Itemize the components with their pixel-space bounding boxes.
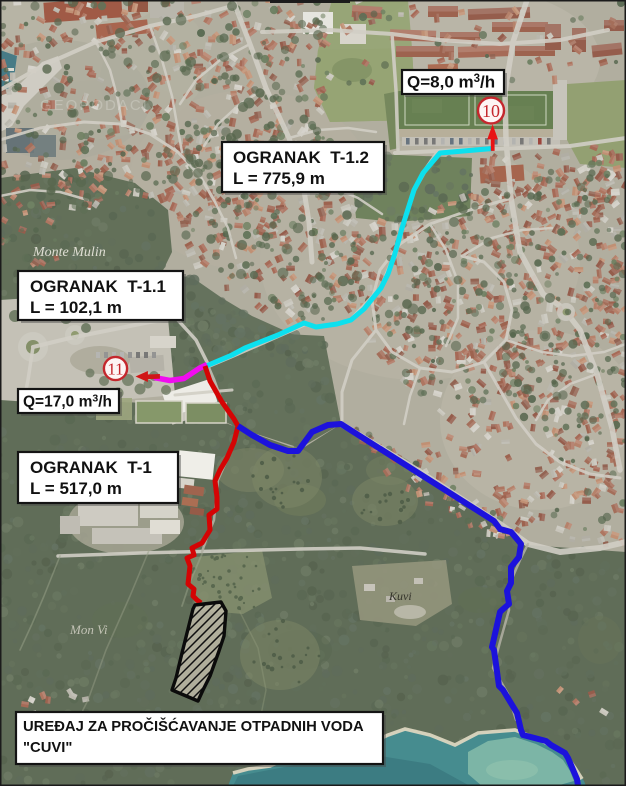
svg-text:GEOPODACI: GEOPODACI (40, 97, 149, 114)
svg-text:UREĐAJ ZA PROČIŠĆAVANJE OTPADN: UREĐAJ ZA PROČIŠĆAVANJE OTPADNIH VODA (23, 717, 364, 735)
svg-text:11: 11 (107, 360, 123, 379)
svg-text:L = 775,9 m: L = 775,9 m (233, 169, 325, 188)
svg-text:L = 517,0 m: L = 517,0 m (30, 479, 122, 498)
svg-text:Q=17,0 m3/h: Q=17,0 m3/h (23, 393, 112, 411)
svg-text:OGRANAK T-1.2: OGRANAK T-1.2 (233, 148, 369, 167)
svg-text:L = 102,1 m: L = 102,1 m (30, 298, 122, 317)
svg-text:Monte Mulin: Monte Mulin (32, 245, 106, 260)
svg-text:10: 10 (482, 101, 500, 121)
svg-text:OGRANAK T-1.1: OGRANAK T-1.1 (30, 277, 166, 296)
svg-text:OGRANAK T-1: OGRANAK T-1 (30, 458, 152, 477)
svg-text:Q=8,0 m3/h: Q=8,0 m3/h (407, 73, 495, 92)
svg-text:Kuvi: Kuvi (388, 589, 412, 603)
svg-text:Mon Vi: Mon Vi (69, 622, 108, 637)
svg-text:"CUVI": "CUVI" (23, 740, 72, 756)
